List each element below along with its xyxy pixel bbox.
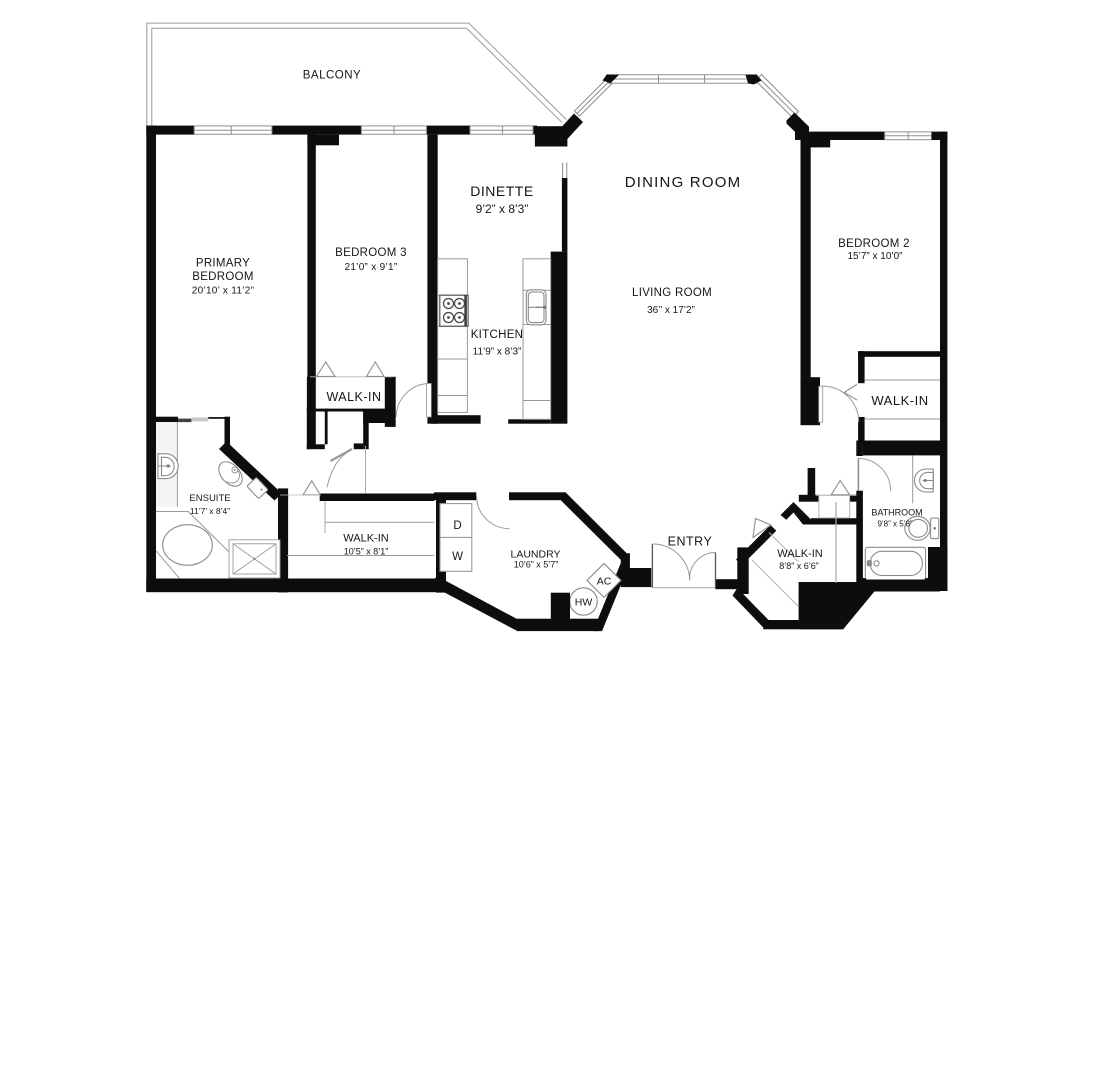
svg-text:BEDROOM: BEDROOM (192, 271, 254, 283)
svg-text:DINETTE: DINETTE (470, 183, 533, 199)
svg-text:BALCONY: BALCONY (303, 70, 361, 82)
svg-text:10’5” x 8’1”: 10’5” x 8’1” (344, 547, 389, 557)
svg-text:WALK-IN: WALK-IN (326, 390, 381, 404)
svg-text:11’7’ x 8’4”: 11’7’ x 8’4” (190, 506, 230, 516)
svg-text:KITCHEN: KITCHEN (471, 329, 524, 341)
svg-text:BEDROOM 3: BEDROOM 3 (335, 247, 407, 259)
svg-text:WALK-IN: WALK-IN (343, 533, 388, 545)
svg-text:WALK-IN: WALK-IN (777, 548, 822, 560)
svg-text:9’8” x 5’8”: 9’8” x 5’8” (877, 520, 912, 529)
svg-text:BATHROOM: BATHROOM (871, 508, 922, 518)
svg-text:11’9” x 8’3”: 11’9” x 8’3” (473, 347, 522, 358)
svg-text:36’’ x 17’2”: 36’’ x 17’2” (647, 305, 695, 316)
svg-text:15’7” x 10’0”: 15’7” x 10’0” (847, 251, 902, 262)
svg-text:10’6” x 5’7”: 10’6” x 5’7” (514, 560, 559, 570)
svg-text:21’0” x 9’1”: 21’0” x 9’1” (344, 262, 397, 273)
svg-text:8’8” x 6’6”: 8’8” x 6’6” (779, 561, 819, 571)
svg-text:ENSUITE: ENSUITE (189, 493, 230, 504)
svg-text:WALK-IN: WALK-IN (871, 393, 928, 408)
svg-text:ENTRY: ENTRY (668, 535, 713, 549)
svg-text:HW: HW (575, 597, 593, 609)
svg-text:DINING ROOM: DINING ROOM (625, 174, 742, 191)
svg-text:20’10’ x 11’2”: 20’10’ x 11’2” (192, 286, 255, 297)
svg-text:BEDROOM 2: BEDROOM 2 (838, 238, 910, 250)
svg-text:LIVING ROOM: LIVING ROOM (632, 287, 712, 299)
svg-text:PRIMARY: PRIMARY (196, 258, 250, 270)
svg-text:D: D (453, 520, 461, 532)
svg-text:W: W (452, 551, 463, 563)
svg-text:AC: AC (597, 576, 612, 588)
svg-text:9’2” x 8’3”: 9’2” x 8’3” (476, 202, 529, 216)
